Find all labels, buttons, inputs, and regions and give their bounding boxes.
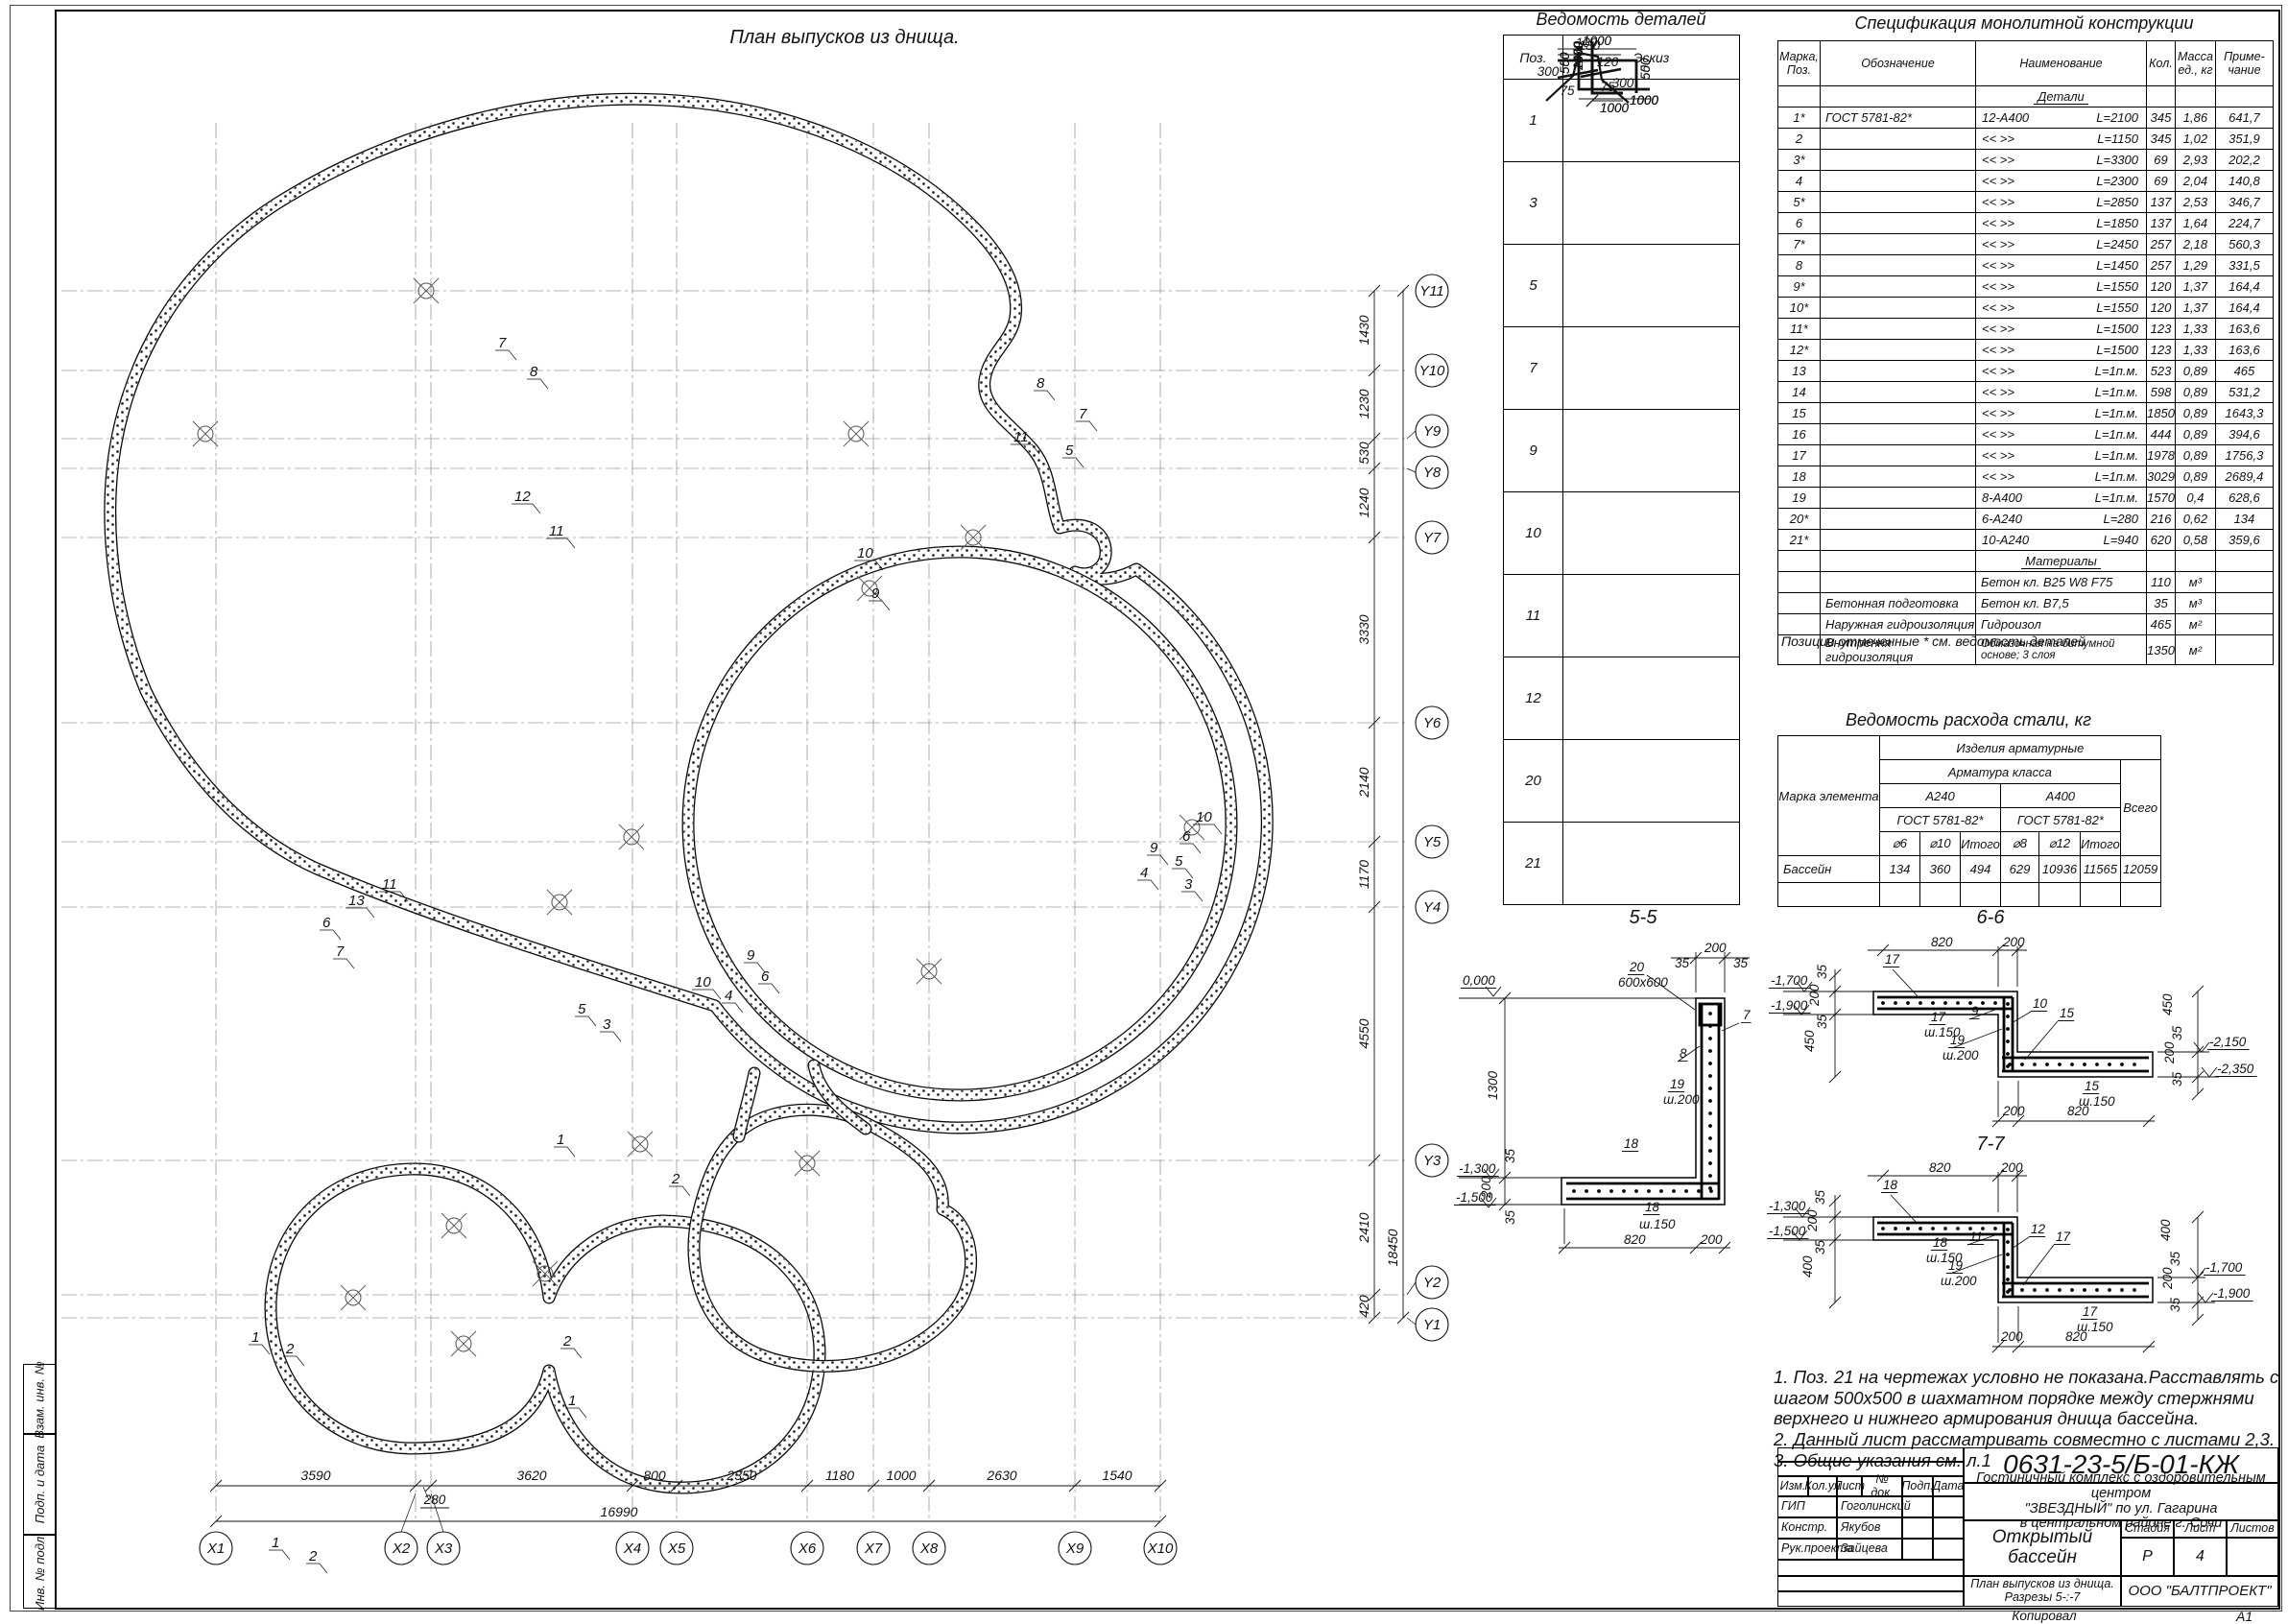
- spec-designation: [1821, 129, 1976, 150]
- tb-sign: [1902, 1539, 1933, 1560]
- spec-length: L=1п.м.: [2095, 385, 2138, 399]
- dim-label: 1180: [825, 1468, 854, 1483]
- sections-drawings: 5-56-67-70,000-1,300-1,500200353520600х6…: [1454, 907, 2257, 1352]
- tb-name: Зайцева: [1837, 1539, 1902, 1560]
- steel-val: 360: [1920, 856, 1961, 883]
- spec-mark: 2: [1778, 129, 1821, 150]
- axis-bubble-label: X2: [392, 1540, 411, 1557]
- sheet-format: А1: [2236, 1609, 2252, 1624]
- axis-leader: [401, 1493, 416, 1532]
- spec-length: L=1500: [2096, 322, 2138, 336]
- steel-val: 134: [1880, 856, 1920, 883]
- spec-length: L=3300: [2096, 153, 2138, 167]
- tb-empty-row: [1777, 1576, 1964, 1591]
- outlet-mark: [451, 1331, 476, 1356]
- spec-designation: [1821, 255, 1976, 276]
- detail-pos: 9: [1504, 410, 1563, 492]
- pool-peanut-wall: [271, 1169, 820, 1488]
- dim-label: 2410: [1356, 1212, 1371, 1243]
- section-label: 200: [2000, 1329, 2023, 1344]
- spec-name: << >>L=1п.м.: [1976, 364, 2146, 378]
- spec-section-title: Материалы: [2021, 554, 2101, 569]
- section-label: 200: [1805, 1209, 1820, 1232]
- wall-pos-label: 9: [747, 947, 755, 964]
- section-label: -1,700: [2205, 1260, 2243, 1275]
- spec-length: L=2450: [2096, 237, 2138, 251]
- spec-cell: [2147, 551, 2176, 572]
- section-label: 0,000: [1463, 973, 1495, 988]
- dim-label: 1170: [1356, 860, 1371, 889]
- spec-qty: 345: [2147, 107, 2176, 129]
- section-label: 8: [1680, 1046, 1687, 1061]
- tb-date: [1933, 1539, 1964, 1560]
- spec-mark: 4: [1778, 171, 1821, 192]
- spec-mass: 0,89: [2175, 445, 2215, 466]
- spec-designation: [1821, 171, 1976, 192]
- dim-label: 1230: [1356, 389, 1371, 418]
- spec-qty: 1850: [2147, 403, 2176, 424]
- spec-name: << >>L=1500: [1976, 343, 2146, 357]
- spec-name: << >>L=1150: [1976, 131, 2146, 146]
- spec-mass: 0,89: [2175, 382, 2215, 403]
- spec-name-text: << >>: [1982, 216, 2014, 230]
- dim-label: 530: [1356, 442, 1371, 465]
- spec-name: << >>L=1п.м.: [1976, 406, 2146, 420]
- spec-designation: [1821, 509, 1976, 530]
- details-table-title: Ведомость деталей: [1503, 10, 1739, 30]
- spec-designation: [1821, 424, 1976, 445]
- wall-pos-leader: [869, 601, 890, 610]
- spec-length: L=1550: [2096, 300, 2138, 315]
- spec-name-cell: 8-А400L=1п.м.: [1976, 488, 2147, 509]
- spec-name: 10-А240L=940: [1976, 533, 2146, 547]
- spec-designation: Бетонная подготовка: [1821, 593, 1976, 614]
- wall-pos-leader: [495, 350, 516, 360]
- axis-leader: [1407, 431, 1416, 439]
- section-label: 17: [2056, 1230, 2071, 1244]
- spec-name-text: << >>: [1982, 237, 2014, 251]
- spec-cell: [2215, 614, 2273, 635]
- spec-cell: [2147, 86, 2176, 107]
- wall-pos-label: 7: [498, 335, 507, 351]
- detail-pos: 3: [1504, 162, 1563, 245]
- spec-designation: [1821, 213, 1976, 234]
- spec-name-text: << >>: [1982, 448, 2014, 463]
- section-label: 18: [1883, 1178, 1898, 1192]
- wall-pos-label: 10: [1196, 809, 1212, 825]
- section-label: -1,700: [1771, 973, 1808, 988]
- section-label: -2,350: [2217, 1062, 2254, 1076]
- dim-label: 3620: [516, 1468, 546, 1483]
- spec-name-text: << >>: [1982, 406, 2014, 420]
- section-label: 600х600: [1618, 975, 1668, 990]
- detail-pos: 10: [1504, 492, 1563, 575]
- spec-mark: 6: [1778, 213, 1821, 234]
- axis-bubble-label: Y1: [1423, 1317, 1441, 1333]
- spec-name-text: << >>: [1982, 174, 2014, 188]
- tb-date: [1933, 1517, 1964, 1539]
- sheets-value: [2227, 1538, 2278, 1576]
- spec-name: << >>L=1п.м.: [1976, 448, 2146, 463]
- detail-sketch-cell: 5001000: [1563, 575, 1740, 657]
- spec-unit: м³: [2175, 593, 2215, 614]
- spec-mass: 0,62: [2175, 509, 2215, 530]
- spec-table-title: Спецификация монолитной конструкции: [1777, 13, 2271, 34]
- wall-pos-label: 4: [725, 988, 732, 1004]
- spec-qty: 137: [2147, 213, 2176, 234]
- dim-label: 1540: [1102, 1468, 1132, 1483]
- axis-bubble-label: X5: [667, 1540, 686, 1557]
- wall-pos-label: 10: [695, 974, 711, 991]
- section-label: 10: [2033, 996, 2048, 1011]
- spec-section-title: Детали: [2034, 89, 2088, 105]
- section-label: -1,500: [1769, 1224, 1806, 1238]
- spec-qty: 1350: [2147, 635, 2176, 665]
- detail-pos: 7: [1504, 327, 1563, 410]
- section-label: 7: [1743, 1008, 1751, 1022]
- section-title: 7-7: [1977, 1134, 2006, 1155]
- dim-label: 4550: [1356, 1018, 1371, 1048]
- spec-name-text: << >>: [1982, 131, 2014, 146]
- steel-row-mark: Бассейн: [1778, 856, 1880, 883]
- wall-pos-label: 1: [272, 1535, 279, 1551]
- dim-label: 2140: [1356, 767, 1371, 798]
- section-label: 18: [1933, 1235, 1948, 1250]
- spec-unit: м²: [2175, 614, 2215, 635]
- wall-pos-leader: [333, 959, 354, 968]
- wall-pos-leader: [527, 379, 548, 389]
- section-title: 5-5: [1630, 907, 1658, 928]
- dim-label: 420: [1356, 1295, 1371, 1318]
- spec-qty: 123: [2147, 319, 2176, 340]
- spec-name-cell: << >>L=1п.м.: [1976, 424, 2147, 445]
- section-label: 450: [2160, 993, 2175, 1015]
- section-label: 400: [1800, 1255, 1815, 1278]
- spec-length: L=1550: [2096, 279, 2138, 294]
- spec-designation: [1821, 361, 1976, 382]
- tb-empty-row: [1777, 1591, 1964, 1607]
- wall-pos-label: 2: [671, 1171, 680, 1187]
- detail-sketch-cell: 1307575: [1563, 740, 1740, 823]
- section-label: 820: [1929, 1160, 1951, 1175]
- steel-empty-cell: [1961, 883, 2001, 907]
- wall-pos-label: 1: [568, 1393, 576, 1409]
- section-label: -1,300: [1769, 1199, 1806, 1213]
- section-label: -1,300: [1459, 1161, 1496, 1176]
- wall-pos-label: 11: [382, 876, 397, 893]
- wall-pos-leader: [546, 538, 575, 548]
- steel-val: 10936: [2039, 856, 2081, 883]
- wall-pos-label: 2: [562, 1333, 572, 1349]
- axis-bubble-label: Y4: [1423, 899, 1441, 916]
- steel-class-header: Арматура класса: [1880, 760, 2121, 784]
- dim-label: 1000: [886, 1468, 916, 1483]
- spec-qty: 444: [2147, 424, 2176, 445]
- wall-pos-leader: [512, 504, 540, 513]
- section-label: 19: [1950, 1033, 1966, 1047]
- spec-note: 531,2: [2215, 382, 2273, 403]
- spec-qty: 3029: [2147, 466, 2176, 488]
- spec-length: L=1п.м.: [2095, 427, 2138, 442]
- axis-bubble-label: Y10: [1419, 363, 1445, 379]
- spec-name-cell: << >>L=1500: [1976, 340, 2147, 361]
- spec-length: L=1500: [2096, 343, 2138, 357]
- detail-pos: 12: [1504, 657, 1563, 740]
- spec-name-text: << >>: [1982, 343, 2014, 357]
- spec-name-cell: << >>L=2850: [1976, 192, 2147, 213]
- spec-name-text: << >>: [1982, 385, 2014, 399]
- axis-bubble-label: X9: [1065, 1540, 1084, 1557]
- wall-pos-leader: [1147, 855, 1168, 865]
- spec-note: 628,6: [2215, 488, 2273, 509]
- tb-sign: [1902, 1496, 1933, 1517]
- spec-material-name: Гидроизол: [1976, 614, 2147, 635]
- axis-leader: [1407, 468, 1416, 472]
- spec-name: << >>L=1п.м.: [1976, 427, 2146, 442]
- wall-pos-label: 9: [1150, 840, 1158, 856]
- spec-name-cell: << >>L=1п.м.: [1976, 361, 2147, 382]
- pool-walls: [110, 99, 1267, 1488]
- spec-qty: 69: [2147, 150, 2176, 171]
- x-overall-label: 16990: [601, 1504, 638, 1519]
- spec-note: 134: [2215, 509, 2273, 530]
- spec-designation: [1821, 319, 1976, 340]
- spec-mark: 10*: [1778, 298, 1821, 319]
- wall-pos-leader: [554, 1147, 575, 1157]
- spec-note: 351,9: [2215, 129, 2273, 150]
- spec-note: 359,6: [2215, 530, 2273, 551]
- tb-header-5: Дата: [1933, 1476, 1964, 1496]
- stage-label: Стадия: [2121, 1520, 2174, 1538]
- spec-designation: [1821, 340, 1976, 361]
- steel-empty-cell: [2039, 883, 2081, 907]
- axis-bubble-label: X4: [623, 1540, 641, 1557]
- steel-empty-cell: [2120, 883, 2160, 907]
- section-label: 200: [1700, 1232, 1723, 1247]
- wall-pos-leader: [600, 1032, 621, 1041]
- spec-qty: 35: [2147, 593, 2176, 614]
- spec-h-qty: Кол.: [2147, 41, 2176, 86]
- spec-name-cell: << >>L=1п.м.: [1976, 445, 2147, 466]
- spec-qty: 137: [2147, 192, 2176, 213]
- spec-name-text: << >>: [1982, 427, 2014, 442]
- section-label: ш.200: [1941, 1274, 1977, 1288]
- wall-pos-label: 3: [603, 1016, 611, 1033]
- section-label: ш.150: [1639, 1217, 1676, 1231]
- detail-pos: 11: [1504, 575, 1563, 657]
- wall-pos-label: 5: [578, 1001, 586, 1017]
- wall-pos-leader: [1137, 880, 1158, 890]
- steel-mark-header: Марка элемента: [1778, 736, 1880, 856]
- section-label: 200: [1704, 941, 1727, 955]
- project-name: Гостиничный комплекс с оздоровительным ц…: [1964, 1483, 2278, 1520]
- section-label: 15: [2060, 1006, 2075, 1020]
- axis-bubble-label: Y2: [1423, 1275, 1442, 1291]
- axis-bubble-label: X1: [206, 1540, 225, 1557]
- wall-pos-label: 9: [871, 585, 880, 602]
- spec-name-cell: << >>L=2300: [1976, 171, 2147, 192]
- spec-name: << >>L=2300: [1976, 174, 2146, 188]
- section-label: 450: [1802, 1030, 1817, 1052]
- section-label: 18: [1624, 1136, 1639, 1151]
- axis-bubble-label: X8: [919, 1540, 939, 1557]
- outlet-mark: [441, 1213, 466, 1238]
- spec-name-cell: << >>L=1850: [1976, 213, 2147, 234]
- spec-name-cell: << >>L=1п.м.: [1976, 382, 2147, 403]
- wall-pos-leader: [669, 1186, 690, 1196]
- spec-mass: 0,89: [2175, 403, 2215, 424]
- spec-cell: [2175, 86, 2215, 107]
- wall-pos-label: 5: [1065, 442, 1074, 459]
- spec-unit: м²: [2175, 635, 2215, 665]
- dim-label: 3590: [300, 1468, 330, 1483]
- detail-sketch-cell: 1000550: [1563, 492, 1740, 575]
- axis-bubble-label: Y5: [1423, 834, 1442, 850]
- spec-length: L=2300: [2096, 174, 2138, 188]
- spec-qty: 1978: [2147, 445, 2176, 466]
- steel-val: 629: [2001, 856, 2039, 883]
- spec-mass: 0,89: [2175, 466, 2215, 488]
- spec-cell: [2215, 86, 2273, 107]
- axis-bubble-label: X10: [1147, 1540, 1174, 1557]
- spec-footnote: Позиции отмеченные * см. ведомость детал…: [1781, 633, 2085, 649]
- spec-mark: 17: [1778, 445, 1821, 466]
- spec-mass: 1,33: [2175, 340, 2215, 361]
- spec-length: L=1450: [2096, 258, 2138, 273]
- wall-pos-label: 2: [308, 1548, 318, 1564]
- spec-designation: [1821, 298, 1976, 319]
- section-label: 19: [1948, 1258, 1964, 1273]
- steel-a400: А400: [2001, 784, 2121, 808]
- steel-val: 494: [1961, 856, 2001, 883]
- axis-bubble-label: X7: [864, 1540, 883, 1557]
- spec-designation: [1821, 382, 1976, 403]
- spec-designation: [1821, 572, 1976, 593]
- steel-table-title: Ведомость расхода стали, кг: [1777, 710, 2159, 730]
- spec-name-text: << >>: [1982, 300, 2014, 315]
- tb-role: Констр.: [1777, 1517, 1837, 1539]
- spec-qty: 598: [2147, 382, 2176, 403]
- spec-mass: 1,86: [2175, 107, 2215, 129]
- spec-qty: 523: [2147, 361, 2176, 382]
- spec-cell: [1778, 593, 1821, 614]
- tb-name: Якубов: [1837, 1517, 1902, 1539]
- steel-d8: ⌀8: [2001, 832, 2039, 856]
- spec-table: Марка, Поз. Обозначение Наименование Кол…: [1777, 40, 2274, 665]
- spec-note: 163,6: [2215, 340, 2273, 361]
- wall-pos-leader: [346, 908, 374, 918]
- wall-pos-label: 7: [1079, 406, 1087, 422]
- note-line: 1. Поз. 21 на чертежах условно не показа…: [1774, 1367, 2288, 1429]
- spec-qty: 465: [2147, 614, 2176, 635]
- spec-length: L=1п.м.: [2095, 406, 2138, 420]
- spec-mass: 1,33: [2175, 319, 2215, 340]
- section-label: 200: [1807, 984, 1822, 1007]
- spec-designation: Наружная гидроизоляция: [1821, 614, 1976, 635]
- plan-title: План выпусков из днища.: [729, 27, 960, 49]
- section-label: 35: [1815, 1014, 1829, 1029]
- wall-pos-label: 6: [761, 968, 770, 985]
- spec-name-text: << >>: [1982, 364, 2014, 378]
- spec-cell: [2215, 572, 2273, 593]
- dim-label: 2630: [986, 1468, 1016, 1483]
- detail-pos: 20: [1504, 740, 1563, 823]
- axis-bubble-label: Y3: [1423, 1153, 1442, 1169]
- wall-pos-label: 4: [1140, 865, 1148, 881]
- tb-header-0: Изм.: [1777, 1476, 1808, 1496]
- spec-qty: 257: [2147, 234, 2176, 255]
- spec-note: 394,6: [2215, 424, 2273, 445]
- spec-mass: 0,58: [2175, 530, 2215, 551]
- section-label: 35: [1813, 1189, 1827, 1205]
- sheet-name: План выпусков из днища. Разрезы 5-:-7: [1964, 1576, 2121, 1607]
- spec-mass: 1,37: [2175, 298, 2215, 319]
- dim-label: 2350: [726, 1468, 756, 1483]
- axis-leader: [1407, 1282, 1416, 1295]
- section-label: ш.200: [1663, 1092, 1700, 1107]
- spec-mass: 1,37: [2175, 276, 2215, 298]
- spec-mark: 11*: [1778, 319, 1821, 340]
- dim-label: 800: [643, 1468, 666, 1483]
- spec-name: << >>L=1550: [1976, 279, 2146, 294]
- wall-pos-label: 8: [1037, 375, 1045, 392]
- tb-header-3: № док.: [1862, 1476, 1902, 1496]
- detail-sketch-cell: 23001000: [1563, 162, 1740, 245]
- outlet-mark: [341, 1285, 366, 1310]
- wall-pos-leader: [758, 984, 779, 993]
- spec-name-cell: << >>L=1500: [1976, 319, 2147, 340]
- section-label: 35: [1503, 1148, 1517, 1163]
- sheet-name-line: План выпусков из днища.: [1970, 1578, 2114, 1591]
- spec-mark: 14: [1778, 382, 1821, 403]
- section-label: 200: [2002, 1104, 2025, 1118]
- spec-cell: [1821, 86, 1976, 107]
- section-title: 6-6: [1977, 907, 2006, 928]
- spec-name: << >>L=1п.м.: [1976, 469, 2146, 484]
- project-line: "ЗВЕЗДНЫЙ" по ул. Гагарина: [2025, 1502, 2218, 1517]
- spec-length: L=1п.м.: [2095, 364, 2138, 378]
- spec-name-cell: 10-А240L=940: [1976, 530, 2147, 551]
- spec-designation: ГОСТ 5781-82*: [1821, 107, 1976, 129]
- detail-sketch-cell: 5501000: [1563, 410, 1740, 492]
- spec-designation: [1821, 530, 1976, 551]
- spec-qty: 1570: [2147, 488, 2176, 509]
- wall-pos-leader: [1181, 892, 1203, 901]
- spec-length: L=1п.м.: [2095, 448, 2138, 463]
- spec-mark: 21*: [1778, 530, 1821, 551]
- dim-label: 1430: [1356, 315, 1371, 345]
- section-label: -2,150: [2209, 1035, 2247, 1049]
- spec-name: << >>L=2450: [1976, 237, 2146, 251]
- tb-empty-row: [1777, 1447, 1964, 1462]
- spec-mass: 2,04: [2175, 171, 2215, 192]
- spec-name-text: << >>: [1982, 322, 2014, 336]
- spec-mass: 1,29: [2175, 255, 2215, 276]
- section-label: 18: [1645, 1200, 1660, 1214]
- spec-name: 6-А240L=280: [1976, 512, 2146, 526]
- spec-length: L=940: [2103, 533, 2138, 547]
- tb-name: Гоголинский: [1837, 1496, 1902, 1517]
- spec-name-cell: << >>L=1п.м.: [1976, 403, 2147, 424]
- spec-qty: 123: [2147, 340, 2176, 361]
- tb-header-2: Лист: [1837, 1476, 1862, 1496]
- section-label: 19: [1670, 1077, 1685, 1091]
- spec-cell: Детали: [1976, 86, 2147, 107]
- tb-sign: [1902, 1517, 1933, 1539]
- steel-empty-cell: [1880, 883, 1920, 907]
- spec-note: 163,6: [2215, 319, 2273, 340]
- section-label: 35: [2168, 1251, 2182, 1266]
